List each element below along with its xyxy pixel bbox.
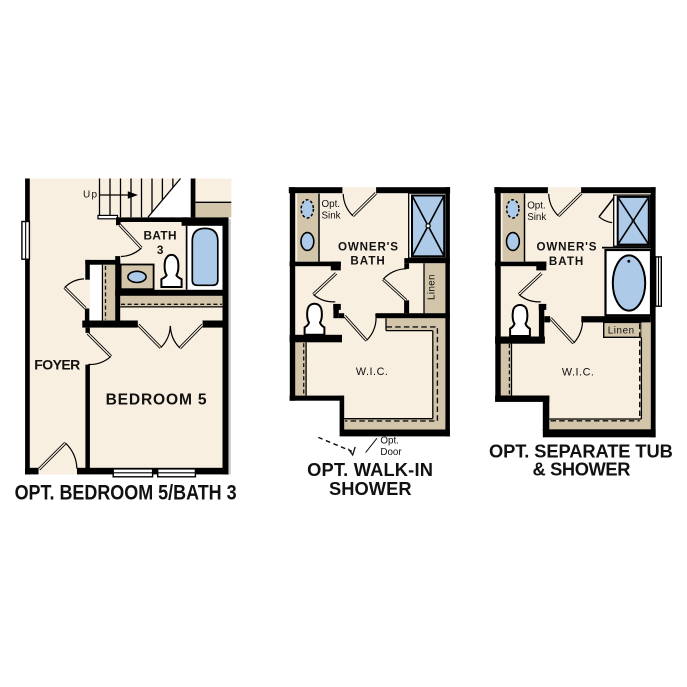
svg-text:Door: Door	[380, 447, 402, 458]
svg-text:Opt.: Opt.	[322, 199, 341, 210]
svg-text:OWNER'S: OWNER'S	[537, 241, 597, 254]
svg-text:OPT. BEDROOM 5/BATH 3: OPT. BEDROOM 5/BATH 3	[15, 481, 237, 504]
svg-text:W.I.C.: W.I.C.	[562, 366, 594, 378]
svg-text:OPT. WALK-IN: OPT. WALK-IN	[307, 459, 433, 480]
svg-text:Opt.: Opt.	[527, 201, 546, 212]
svg-text:SHOWER: SHOWER	[329, 478, 412, 499]
svg-text:Opt.: Opt.	[380, 436, 399, 447]
svg-text:Linen: Linen	[608, 325, 634, 336]
svg-text:BEDROOM 5: BEDROOM 5	[106, 391, 207, 408]
svg-text:Linen: Linen	[427, 274, 438, 300]
svg-text:Sink: Sink	[322, 211, 341, 222]
svg-text:BATH: BATH	[144, 228, 177, 242]
svg-text:OWNER'S: OWNER'S	[338, 241, 398, 254]
svg-text:W.I.C.: W.I.C.	[356, 366, 388, 378]
svg-text:BATH: BATH	[350, 254, 384, 267]
svg-text:FOYER: FOYER	[34, 356, 80, 372]
svg-text:Sink: Sink	[527, 212, 546, 223]
svg-text:BATH: BATH	[549, 255, 583, 268]
svg-text:3: 3	[157, 243, 164, 257]
svg-text:& SHOWER: & SHOWER	[533, 459, 631, 480]
svg-text:Up: Up	[83, 190, 97, 201]
